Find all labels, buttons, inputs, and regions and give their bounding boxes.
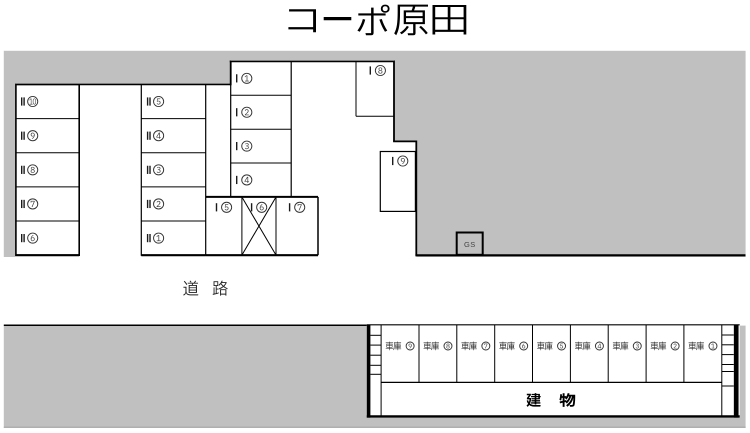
svg-text:GS: GS — [464, 240, 476, 249]
